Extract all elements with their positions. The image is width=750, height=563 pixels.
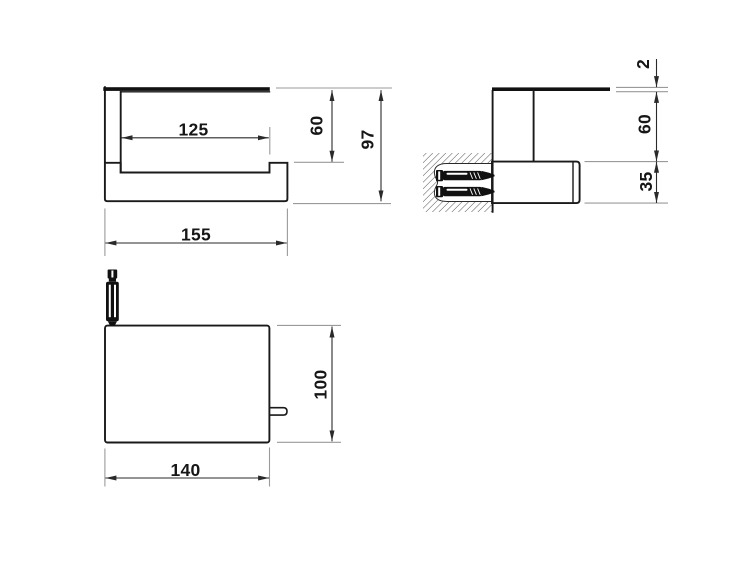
bottom-cover-outline <box>105 326 269 443</box>
bottom-dimensions: 100 140 <box>105 325 341 486</box>
bottom-view: 100 140 <box>105 270 341 487</box>
dim-label-side-drop-height: 60 <box>635 114 655 134</box>
dim-label-plate-thickness: 2 <box>633 59 653 69</box>
side-cover-plate <box>492 87 610 91</box>
dim-label-bar-height: 35 <box>636 171 656 191</box>
technical-drawing: 125 155 60 97 2 60 3 <box>0 0 750 563</box>
anchor-screw-plan <box>106 270 119 327</box>
dim-label-width: 140 <box>170 460 200 480</box>
front-body-outline <box>105 87 288 201</box>
front-cover-plate <box>103 87 269 91</box>
bottom-side-pin <box>269 408 287 415</box>
drawing-canvas: 125 155 60 97 2 60 3 <box>0 0 750 563</box>
front-view: 125 155 60 97 <box>103 87 392 256</box>
dim-label-drop-height: 60 <box>307 115 327 135</box>
side-roll-bar <box>492 162 580 204</box>
dim-label-depth: 100 <box>311 369 331 399</box>
dim-label-overall-height: 97 <box>358 129 378 149</box>
side-view: 2 60 35 <box>423 59 668 212</box>
dim-label-overall-width: 155 <box>181 225 211 245</box>
dim-label-inner-width: 125 <box>178 120 208 140</box>
side-dimensions: 2 60 35 <box>585 59 669 203</box>
